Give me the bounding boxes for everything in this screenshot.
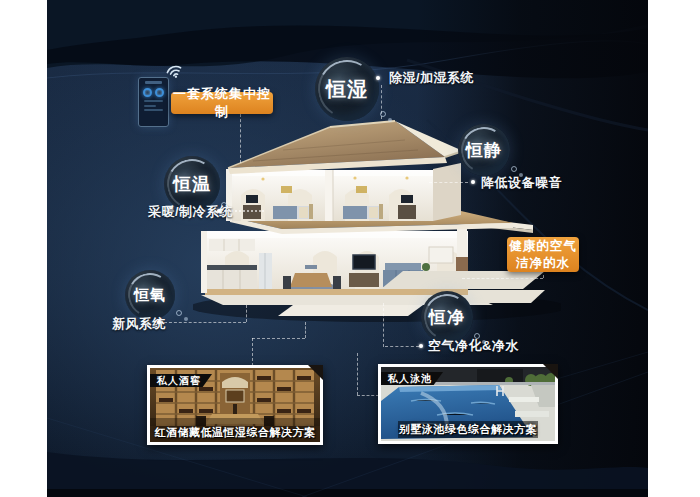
bubble-temperature-label: 恒温 <box>173 172 211 196</box>
bubble-humidity-label: 恒湿 <box>326 76 368 103</box>
pool-card-caption: 别墅泳池绿色综合解决方案 <box>398 421 538 438</box>
pool-card: 私人泳池 别墅泳池绿色综合解决方案 <box>378 364 558 444</box>
pool-card-tag: 私人泳池 <box>381 372 443 385</box>
connector-purity-v <box>383 303 384 347</box>
bubble-quiet-label: 恒静 <box>466 139 502 162</box>
label-oxygen-system: 新风系统 <box>112 315 166 333</box>
dot-purity <box>419 344 423 348</box>
pool-card-corner-fold <box>543 364 558 379</box>
clean-water-line: 洁净的水 <box>516 255 570 271</box>
wine-cellar-card: 私人酒窖 红酒储藏低温恒湿综合解决方案 <box>147 365 323 445</box>
panel-knob-left <box>143 88 152 97</box>
connector-wine-h <box>252 338 305 339</box>
healthy-air-water-box: 健康的空气 洁净的水 <box>507 237 579 272</box>
connector-pool-v <box>357 353 358 395</box>
central-control-banner: 一套系统集中控制 <box>171 92 273 114</box>
panel-row <box>144 109 163 111</box>
poster-canvas: 一套系统集中控制 健康的空气 洁净的水 恒湿 恒静 恒温 恒氧 恒净 除湿/加湿… <box>0 0 700 497</box>
wine-card-caption: 红酒储藏低温恒湿综合解决方案 <box>147 425 323 440</box>
connector-banner <box>240 114 241 163</box>
connector-quiet <box>429 182 468 183</box>
connector-oxygen-h <box>164 322 246 323</box>
panel-row <box>144 100 163 102</box>
wine-card-tag: 私人酒窖 <box>150 374 212 387</box>
smart-control-panel <box>138 77 169 127</box>
bubble-oxygen-label: 恒氧 <box>134 286 166 305</box>
panel-knobs <box>141 88 166 97</box>
wine-card-corner-fold <box>308 365 323 380</box>
central-control-banner-label: 一套系统集中控制 <box>171 85 273 121</box>
panel-knob-right <box>155 88 164 97</box>
bubble-humidity: 恒湿 <box>315 57 379 121</box>
dot-quiet <box>471 180 475 184</box>
label-quiet-system: 降低设备噪音 <box>481 174 562 192</box>
dot-oxygen <box>157 320 161 324</box>
panel-header <box>145 81 162 84</box>
healthy-air-line: 健康的空气 <box>509 238 577 254</box>
connector-wine-v2 <box>252 338 253 366</box>
label-purity-system: 空气净化&净水 <box>428 337 519 355</box>
dot-humidity <box>376 76 380 80</box>
dot-temperature <box>217 209 221 213</box>
bubble-quiet: 恒静 <box>458 124 510 176</box>
connector-purity-h <box>385 346 419 347</box>
label-humidity-system: 除湿/加湿系统 <box>389 69 474 87</box>
connector-wine-v1 <box>305 322 306 338</box>
bubble-purity: 恒净 <box>421 291 473 343</box>
connector-pool-h <box>357 395 379 396</box>
bubble-oxygen: 恒氧 <box>125 270 175 320</box>
connector-oxygen-v <box>246 305 247 322</box>
bubble-purity-label: 恒净 <box>429 306 465 329</box>
wifi-icon <box>165 61 185 79</box>
panel-row <box>144 105 156 107</box>
connector-highlight-h <box>462 278 543 279</box>
